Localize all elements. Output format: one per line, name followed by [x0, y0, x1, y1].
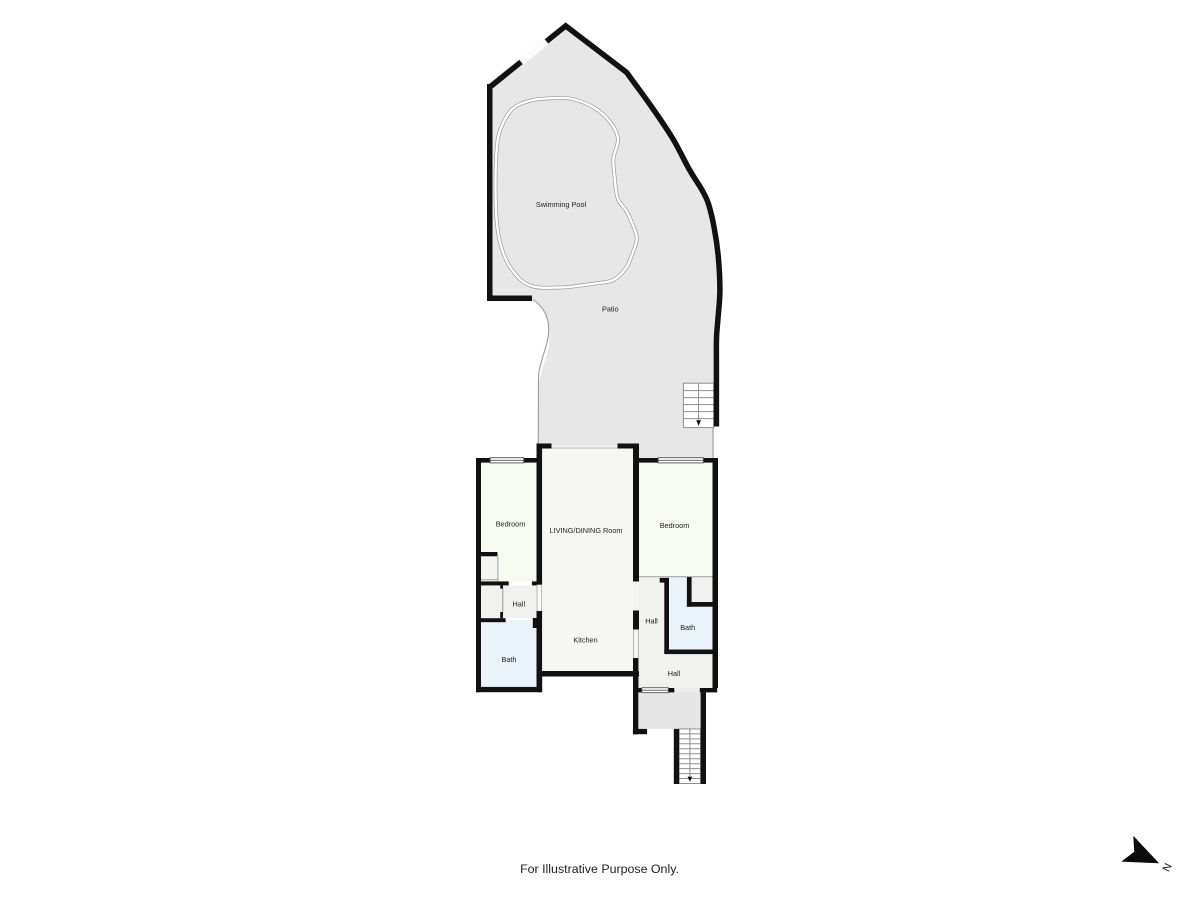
- svg-text:Hall: Hall: [645, 617, 658, 626]
- svg-text:Swimming Pool: Swimming Pool: [536, 200, 587, 209]
- svg-text:LIVING/DINING Room: LIVING/DINING Room: [550, 526, 623, 535]
- svg-text:Kitchen: Kitchen: [573, 636, 597, 645]
- svg-text:For Illustrative Purpose Only.: For Illustrative Purpose Only.: [520, 862, 679, 876]
- svg-text:Hall: Hall: [668, 669, 681, 678]
- svg-text:Bedroom: Bedroom: [496, 520, 526, 529]
- svg-text:Bath: Bath: [501, 655, 516, 664]
- svg-text:Bath: Bath: [680, 623, 695, 632]
- svg-text:Hall: Hall: [513, 600, 526, 609]
- svg-text:Patio: Patio: [602, 304, 619, 313]
- svg-text:Bedroom: Bedroom: [660, 521, 690, 530]
